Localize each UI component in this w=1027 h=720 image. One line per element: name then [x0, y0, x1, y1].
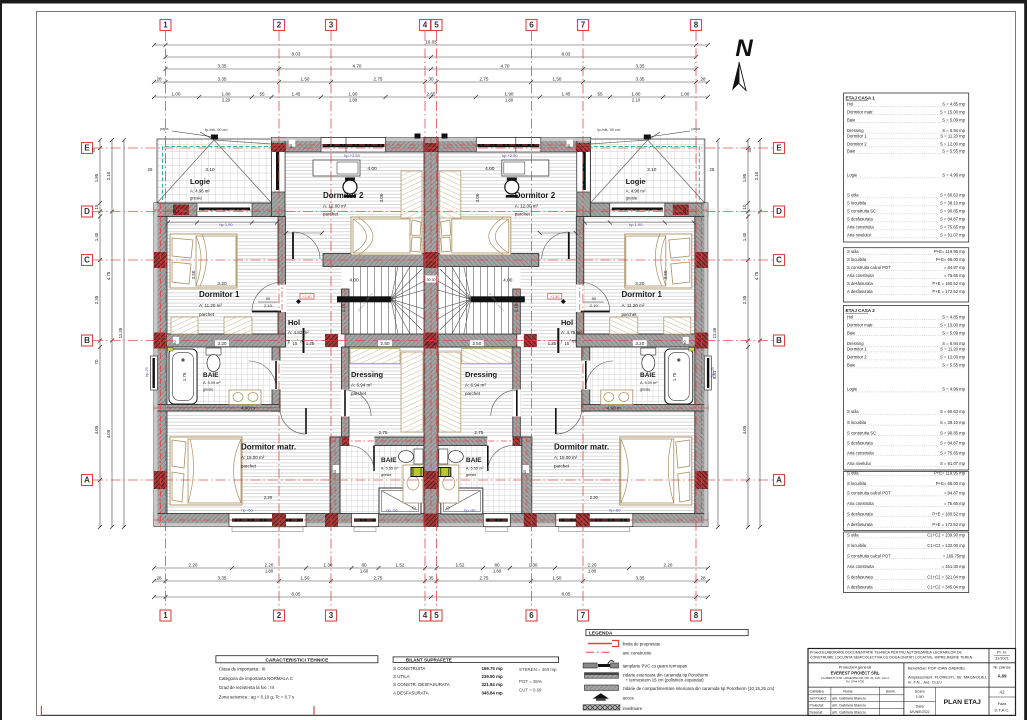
svg-text:8.05: 8.05 — [562, 592, 571, 597]
svg-text:B: B — [84, 336, 90, 345]
svg-text:S CONSTRUITA: S CONSTRUITA — [393, 666, 425, 671]
svg-text:parchet: parchet — [465, 391, 481, 396]
svg-text:S UTILA: S UTILA — [393, 674, 410, 679]
svg-text:PLAN ETAJ: PLAN ETAJ — [944, 699, 981, 706]
svg-text:CONSTRUIRE LOCUINTA SEMICOLECT: CONSTRUIRE LOCUINTA SEMICOLECTIVA CU DOU… — [810, 656, 973, 660]
svg-text:gresie: gresie — [640, 388, 650, 392]
svg-text:S = 11.20 mp: S = 11.20 mp — [940, 347, 965, 352]
svg-text:CARACTERISTICI TEHNICE: CARACTERISTICI TEHNICE — [265, 657, 329, 663]
svg-text:A desfasurata: A desfasurata — [847, 522, 873, 527]
svg-text:55: 55 — [597, 92, 603, 97]
svg-text:2.50: 2.50 — [381, 341, 390, 346]
svg-text:7: 7 — [581, 611, 586, 620]
svg-text:4.75: 4.75 — [106, 271, 111, 280]
svg-text:S = 6.94 mp: S = 6.94 mp — [942, 341, 965, 346]
svg-text:1.25: 1.25 — [306, 341, 315, 346]
svg-text:2.75: 2.75 — [374, 576, 383, 581]
svg-text:Pr. nr.: Pr. nr. — [997, 651, 1007, 655]
svg-text:1.00: 1.00 — [172, 92, 181, 97]
svg-text:gresie: gresie — [203, 388, 213, 392]
svg-text:1.50: 1.50 — [553, 576, 562, 581]
svg-text:S locuibila: S locuibila — [847, 420, 867, 425]
svg-text:3.20: 3.20 — [635, 341, 644, 346]
svg-text:2.20: 2.20 — [588, 563, 597, 568]
svg-text:8.03: 8.03 — [562, 52, 571, 57]
svg-text:C1+C2 = 345.04 mp: C1+C2 = 345.04 mp — [927, 585, 965, 590]
svg-text:BILANT SUPRAFETE: BILANT SUPRAFETE — [406, 658, 452, 663]
svg-text:239.90 mp: 239.90 mp — [481, 674, 503, 679]
svg-text:Scara: Scara — [915, 689, 926, 693]
svg-text:Baie: Baie — [847, 330, 856, 335]
svg-text:1.52: 1.52 — [396, 563, 405, 568]
svg-text:3.35: 3.35 — [218, 576, 227, 581]
svg-text:S locuibila: S locuibila — [847, 543, 867, 548]
svg-text:A: 6.94 m²: A: 6.94 m² — [465, 383, 486, 388]
svg-text:parchet: parchet — [622, 312, 638, 317]
svg-text:Beneficiar: POP IOAN GABRIEL: Beneficiar: POP IOAN GABRIEL — [908, 666, 967, 671]
svg-text:Aria nivelului: Aria nivelului — [847, 461, 871, 466]
svg-text:2.20: 2.20 — [264, 495, 273, 500]
svg-text:+ termositem 15 cm (polistiren: + termositem 15 cm (polistiren expandat) — [626, 677, 705, 682]
svg-text:Hol: Hol — [847, 101, 853, 106]
svg-text:gresie: gresie — [381, 473, 391, 477]
svg-text:4.05: 4.05 — [106, 429, 111, 438]
svg-text:hp -60: hp -60 — [241, 508, 253, 513]
svg-text:acces: acces — [623, 695, 634, 700]
svg-text:3: 3 — [329, 611, 334, 620]
svg-text:D: D — [776, 207, 782, 216]
svg-text:3.50: 3.50 — [191, 270, 196, 279]
svg-text:A.09: A.09 — [998, 674, 1008, 679]
svg-text:Aria construita: Aria construita — [847, 501, 874, 506]
svg-text:S utila: S utila — [847, 249, 859, 254]
svg-text:3.35: 3.35 — [218, 64, 227, 69]
svg-text:1.00: 1.00 — [681, 92, 690, 97]
svg-text:4.00: 4.00 — [367, 166, 377, 172]
svg-text:S = 4.96 mp: S = 4.96 mp — [942, 387, 965, 392]
svg-text:3.35: 3.35 — [218, 77, 227, 82]
svg-text:1.60: 1.60 — [360, 569, 369, 574]
svg-text:BAIE: BAIE — [640, 372, 656, 379]
svg-text:C: C — [776, 256, 782, 265]
svg-text:N: N — [735, 35, 753, 62]
svg-text:A: 12.00 m²: A: 12.00 m² — [515, 204, 539, 209]
svg-text:Zona seismica : ag = 0.10 g, T: Zona seismica : ag = 0.10 g, Tc = 0.7 s — [219, 695, 295, 700]
svg-text:A2: A2 — [999, 690, 1005, 695]
svg-text:= 75.65 mp: = 75.65 mp — [944, 273, 966, 278]
svg-text:2.75: 2.75 — [480, 77, 489, 82]
svg-text:Nr. plansa: Nr. plansa — [993, 666, 1011, 670]
svg-text:Dressing: Dressing — [847, 128, 864, 133]
svg-text:31/2021: 31/2021 — [995, 657, 1009, 661]
svg-text:3.00: 3.00 — [475, 193, 480, 202]
svg-text:papa: papa — [160, 127, 169, 131]
svg-text:= 151.30 mp: = 151.30 mp — [942, 564, 966, 569]
svg-text:S utila: S utila — [847, 409, 859, 414]
svg-text:hp -96: hp -96 — [464, 508, 476, 513]
svg-text:tp./nik. 90 cm: tp./nik. 90 cm — [205, 128, 228, 132]
svg-text:A: 4.96 m²: A: 4.96 m² — [190, 189, 210, 194]
svg-text:tp./nik. 90 cm: tp./nik. 90 cm — [597, 128, 620, 132]
svg-text:S = 15.00 mp: S = 15.00 mp — [940, 109, 966, 114]
svg-text:CUT = 0.69: CUT = 0.69 — [519, 687, 542, 692]
svg-text:D.T.A.C.: D.T.A.C. — [995, 708, 1010, 713]
svg-text:C: C — [84, 256, 90, 265]
svg-text:axe constructie: axe constructie — [623, 650, 653, 655]
svg-text:Dormitor 1: Dormitor 1 — [199, 290, 240, 299]
svg-text:A: 5.09 m²: A: 5.09 m² — [640, 381, 658, 385]
svg-text:S = 90.85 mp: S = 90.85 mp — [940, 209, 966, 214]
svg-text:1.25: 1.25 — [548, 341, 557, 346]
svg-text:2.10: 2.10 — [590, 303, 599, 308]
svg-text:parchet: parchet — [241, 464, 257, 469]
svg-text:S = 84.87 mp: S = 84.87 mp — [940, 441, 966, 446]
svg-text:A: A — [84, 476, 90, 485]
svg-text:S construita SC: S construita SC — [847, 430, 876, 435]
svg-text:16.05: 16.05 — [425, 40, 437, 45]
svg-text:S locuibila: S locuibila — [847, 481, 867, 486]
svg-text:P+E= 66.00 mp: P+E= 66.00 mp — [936, 481, 966, 486]
svg-text:1.50: 1.50 — [301, 77, 310, 82]
svg-text:+2.80: +2.80 — [302, 295, 311, 299]
svg-text:A: 6.94 m²: A: 6.94 m² — [351, 383, 372, 388]
svg-text:4.70: 4.70 — [501, 64, 510, 69]
svg-text:S = 12.00 mp: S = 12.00 mp — [940, 355, 966, 360]
svg-text:Logie: Logie — [847, 173, 858, 178]
svg-text:Dormitor 2: Dormitor 2 — [847, 355, 867, 360]
svg-text:6/IUNIE/2022: 6/IUNIE/2022 — [910, 710, 930, 714]
svg-text:S construita calcul POT: S construita calcul POT — [847, 265, 891, 270]
svg-text:ETAJ CASA 2: ETAJ CASA 2 — [846, 308, 876, 313]
svg-text:169.75 mp: 169.75 mp — [481, 666, 503, 671]
svg-text:Dressing: Dressing — [351, 370, 384, 379]
svg-text:parchet: parchet — [554, 464, 570, 469]
svg-text:Calitatea: Calitatea — [810, 690, 824, 694]
svg-text:P+E= 66.00 mp: P+E= 66.00 mp — [936, 257, 966, 262]
svg-text:3.35: 3.35 — [636, 77, 645, 82]
svg-text:= 84.87 mp: = 84.87 mp — [944, 491, 966, 496]
svg-text:1.40: 1.40 — [742, 232, 747, 241]
svg-text:40: 40 — [333, 470, 337, 474]
svg-text:2.10: 2.10 — [513, 303, 518, 312]
svg-text:1.80: 1.80 — [505, 98, 514, 103]
svg-text:A desfasurata: A desfasurata — [847, 585, 873, 590]
svg-text:3.20: 3.20 — [635, 281, 645, 287]
svg-text:C1+C2 = 321.04 mp: C1+C2 = 321.04 mp — [927, 574, 965, 579]
svg-text:11.35: 11.35 — [118, 327, 123, 338]
svg-text:gresie: gresie — [190, 196, 202, 201]
svg-text:S = 12.00 mp: S = 12.00 mp — [940, 142, 966, 147]
svg-text:4.05: 4.05 — [742, 425, 747, 434]
svg-text:1.75: 1.75 — [672, 372, 677, 381]
svg-text:arh. Gabriela Stanciu: arh. Gabriela Stanciu — [832, 697, 866, 701]
svg-text:S = 5.09 mp: S = 5.09 mp — [942, 117, 965, 122]
svg-text:Proiect:ELABORARE DOCUMENTATIE: Proiect:ELABORARE DOCUMENTATIE TEHNICA P… — [810, 651, 962, 655]
svg-text:4.05: 4.05 — [94, 425, 99, 434]
svg-text:1.45: 1.45 — [562, 92, 571, 97]
svg-text:25: 25 — [709, 167, 714, 172]
svg-text:1.45: 1.45 — [292, 92, 301, 97]
svg-text:2.10: 2.10 — [754, 171, 759, 180]
svg-text:1.90: 1.90 — [349, 92, 358, 97]
svg-text:P+E = 172.52 mp: P+E = 172.52 mp — [932, 522, 965, 527]
svg-text:11.36: 11.36 — [712, 327, 717, 338]
svg-text:35: 35 — [428, 576, 434, 581]
svg-text:2.75: 2.75 — [379, 430, 388, 435]
svg-text:70: 70 — [94, 359, 99, 364]
svg-text:1.80: 1.80 — [588, 569, 597, 574]
svg-text:Aria construita: Aria construita — [847, 564, 874, 569]
svg-text:parchet: parchet — [515, 212, 531, 217]
svg-text:= 84.87 mp: = 84.87 mp — [944, 265, 966, 270]
svg-text:2.20: 2.20 — [189, 563, 198, 568]
svg-text:Nume: Nume — [843, 690, 853, 694]
svg-text:15: 15 — [564, 341, 569, 346]
svg-text:Dressing: Dressing — [465, 370, 498, 379]
svg-text:1: 1 — [163, 611, 168, 620]
svg-text:S = 4.85 mp: S = 4.85 mp — [942, 101, 965, 106]
svg-text:Tel. 0744 9730: Tel. 0744 9730 — [846, 680, 865, 684]
svg-text:S = 75.65 mp: S = 75.65 mp — [940, 225, 966, 230]
svg-text:Clasa de importanta : III: Clasa de importanta : III — [219, 667, 266, 672]
svg-text:Sef Proiect:: Sef Proiect: — [810, 697, 828, 701]
svg-text:2.10: 2.10 — [264, 303, 273, 308]
svg-text:E: E — [84, 144, 90, 153]
svg-text:1.50: 1.50 — [301, 576, 310, 581]
svg-text:A: 12.00 m²: A: 12.00 m² — [323, 204, 347, 209]
svg-text:S = 5.55 mp: S = 5.55 mp — [942, 363, 965, 368]
svg-text:Dormitor matr.: Dormitor matr. — [847, 322, 874, 327]
svg-text:hp -96: hp -96 — [386, 508, 398, 513]
svg-text:S construita calcul POT: S construita calcul POT — [847, 554, 891, 559]
svg-text:345.84 mp: 345.84 mp — [481, 690, 503, 695]
svg-text:S = 60.63 mp: S = 60.63 mp — [940, 409, 966, 414]
svg-text:C1+C2 = 239.90 mp: C1+C2 = 239.90 mp — [927, 533, 965, 538]
svg-text:6: 6 — [529, 21, 534, 30]
svg-text:hp 25: hp 25 — [145, 367, 149, 377]
svg-text:gresie: gresie — [466, 473, 476, 477]
svg-text:S locuibila: S locuibila — [847, 257, 867, 262]
svg-text:hp +2.50: hp +2.50 — [502, 153, 518, 158]
svg-text:nr. F.N., Jud. CLUJ: nr. F.N., Jud. CLUJ — [908, 680, 942, 685]
svg-text:D: D — [84, 207, 90, 216]
svg-text:Dormitor matr.: Dormitor matr. — [554, 443, 609, 452]
svg-text:28: 28 — [700, 576, 706, 581]
svg-text:30: 30 — [428, 77, 434, 82]
svg-text:6: 6 — [529, 611, 534, 620]
svg-text:+2.80: +2.80 — [550, 295, 559, 299]
svg-text:Data: Data — [916, 704, 925, 708]
svg-text:1.52: 1.52 — [456, 563, 465, 568]
svg-text:S desfasurata: S desfasurata — [847, 281, 874, 286]
svg-text:A DESFASURATA: A DESFASURATA — [393, 690, 429, 695]
svg-text:A: 4.96 m²: A: 4.96 m² — [626, 189, 646, 194]
svg-text:Hol: Hol — [847, 314, 853, 319]
svg-text:BAIE: BAIE — [381, 457, 397, 464]
svg-text:3: 3 — [329, 21, 334, 30]
svg-text:Dormitor matr.: Dormitor matr. — [847, 109, 874, 114]
svg-text:55: 55 — [259, 92, 265, 97]
svg-text:hp 25: hp 25 — [711, 367, 715, 377]
svg-text:1.60: 1.60 — [493, 569, 502, 574]
svg-text:EVEREST PROIECT SRL: EVEREST PROIECT SRL — [831, 670, 880, 675]
svg-text:P+E= 119.95 mp: P+E= 119.95 mp — [934, 249, 966, 254]
svg-text:Categoria de importanta NORMAL: Categoria de importanta NORMALA C — [219, 676, 293, 681]
svg-text:limita de proprietate: limita de proprietate — [623, 641, 661, 646]
svg-text:1.80: 1.80 — [632, 92, 641, 97]
svg-text:2.75: 2.75 — [480, 576, 489, 581]
svg-text:Grad de rezistenta la foc : II: Grad de rezistenta la foc : III — [219, 685, 274, 690]
svg-text:S = 6.94 mp: S = 6.94 mp — [942, 128, 965, 133]
svg-text:tamplarie PVC cu geam termopan: tamplarie PVC cu geam termopan — [623, 663, 688, 668]
svg-text:1.50: 1.50 — [553, 77, 562, 82]
svg-text:E: E — [776, 144, 782, 153]
svg-text:1:50: 1:50 — [916, 694, 925, 699]
svg-text:Dressing: Dressing — [847, 341, 864, 346]
svg-text:Proiectat:: Proiectat: — [810, 704, 824, 708]
svg-text:Dormitor 2: Dormitor 2 — [323, 191, 364, 200]
svg-text:2.65: 2.65 — [427, 92, 436, 97]
svg-text:A: 15.00 m²: A: 15.00 m² — [554, 455, 578, 460]
svg-text:2.10: 2.10 — [632, 98, 641, 103]
svg-text:P+E = 160.52 mp: P+E = 160.52 mp — [932, 281, 965, 286]
svg-text:Dormitor 2: Dormitor 2 — [847, 142, 867, 147]
svg-text:5: 5 — [434, 21, 439, 30]
svg-text:A: 4.82 m²: A: 4.82 m² — [288, 330, 309, 335]
svg-text:30: 30 — [425, 341, 430, 346]
svg-text:Dormitor 2: Dormitor 2 — [515, 191, 556, 200]
svg-text:Baie: Baie — [847, 363, 856, 368]
svg-text:4.00: 4.00 — [485, 166, 495, 172]
svg-text:1.80: 1.80 — [349, 98, 358, 103]
svg-text:2: 2 — [277, 611, 282, 620]
svg-text:P+E= 119.95 mp: P+E= 119.95 mp — [934, 470, 966, 475]
svg-text:S desfasurata: S desfasurata — [847, 512, 874, 517]
svg-text:S = 91.07 mp: S = 91.07 mp — [940, 461, 966, 466]
svg-text:P+E = 172.52 mp: P+E = 172.52 mp — [932, 289, 965, 294]
svg-text:7: 7 — [581, 21, 586, 30]
svg-text:A: 11.20 m²: A: 11.20 m² — [622, 303, 645, 308]
svg-text:S = 11.20 mp: S = 11.20 mp — [940, 134, 965, 139]
svg-text:S = 4.96 mp: S = 4.96 mp — [942, 173, 965, 178]
svg-text:25: 25 — [148, 167, 153, 172]
svg-text:invelitoare: invelitoare — [623, 706, 643, 711]
svg-text:Hol: Hol — [288, 318, 300, 327]
svg-text:parchet: parchet — [199, 312, 215, 317]
svg-text:4: 4 — [423, 21, 428, 30]
svg-text:S = 90.85 mp: S = 90.85 mp — [940, 430, 966, 435]
svg-text:15: 15 — [94, 204, 99, 209]
svg-text:hp 1.90: hp 1.90 — [629, 222, 643, 227]
svg-text:Baie: Baie — [847, 117, 856, 122]
svg-text:S CONSTR. DESFASURATA: S CONSTR. DESFASURATA — [393, 682, 450, 687]
svg-text:S desfasurata: S desfasurata — [847, 574, 874, 579]
svg-text:80: 80 — [361, 563, 367, 568]
svg-text:S = 5.09 mp: S = 5.09 mp — [942, 330, 965, 335]
svg-text:hp -60: hp -60 — [609, 508, 621, 513]
svg-text:1.90: 1.90 — [505, 92, 514, 97]
svg-text:Logie: Logie — [847, 387, 858, 392]
svg-text:321.84 mp: 321.84 mp — [481, 682, 503, 687]
svg-text:40: 40 — [173, 340, 177, 344]
svg-text:Dormitor matr.: Dormitor matr. — [241, 443, 296, 452]
svg-text:1.30: 1.30 — [529, 563, 538, 568]
svg-text:A: 4.75 m²: A: 4.75 m² — [561, 330, 582, 335]
svg-text:30 30: 30 30 — [427, 278, 436, 282]
svg-text:40: 40 — [289, 144, 293, 148]
svg-text:Semn.: Semn. — [886, 690, 896, 694]
svg-text:2.20: 2.20 — [265, 563, 274, 568]
svg-text:3.35: 3.35 — [636, 576, 645, 581]
svg-text:4.00: 4.00 — [503, 278, 513, 284]
svg-text:= 169.75mp: = 169.75mp — [943, 554, 966, 559]
svg-text:Dormitor 1: Dormitor 1 — [847, 134, 867, 139]
svg-text:parchet: parchet — [351, 391, 367, 396]
svg-text:10: 10 — [742, 204, 747, 209]
svg-text:S construita SC: S construita SC — [847, 209, 876, 214]
svg-text:LEGENDA: LEGENDA — [589, 631, 613, 637]
svg-text:40: 40 — [523, 470, 527, 474]
svg-text:3.10: 3.10 — [205, 167, 215, 173]
svg-text:S construita calcul POT: S construita calcul POT — [847, 491, 891, 496]
svg-text:40: 40 — [172, 208, 177, 213]
svg-text:Logie: Logie — [190, 177, 210, 186]
svg-text:30: 30 — [433, 341, 438, 346]
svg-text:S = 75.65 mp: S = 75.65 mp — [940, 451, 966, 456]
svg-text:Baie: Baie — [847, 148, 856, 153]
svg-text:4.60 m: 4.60 m — [607, 406, 621, 411]
svg-text:Aria nivelului: Aria nivelului — [847, 233, 871, 238]
svg-text:80: 80 — [494, 563, 500, 568]
svg-text:1.85: 1.85 — [742, 173, 747, 182]
svg-text:1.30: 1.30 — [324, 563, 333, 568]
svg-text:S desfasurata: S desfasurata — [847, 441, 874, 446]
svg-text:1.80: 1.80 — [265, 569, 274, 574]
svg-text:8: 8 — [694, 21, 699, 30]
svg-text:2.20: 2.20 — [590, 495, 599, 500]
svg-text:A desfasurata: A desfasurata — [847, 289, 873, 294]
svg-text:S = 15.00 mp: S = 15.00 mp — [940, 322, 966, 327]
svg-text:Logie: Logie — [626, 177, 646, 186]
svg-text:40: 40 — [683, 340, 687, 344]
svg-text:arh. Gabriela Stanciu: arh. Gabriela Stanciu — [832, 710, 866, 714]
svg-text:S = 84.87 mp: S = 84.87 mp — [940, 217, 966, 222]
svg-text:1.80: 1.80 — [222, 92, 231, 97]
svg-text:3.20: 3.20 — [217, 281, 227, 287]
svg-text:4.60 m: 4.60 m — [241, 406, 255, 411]
svg-text:= 75.65 mp: = 75.65 mp — [944, 501, 966, 506]
svg-text:3.35: 3.35 — [636, 64, 645, 69]
svg-text:3.00: 3.00 — [379, 193, 384, 202]
svg-text:28: 28 — [156, 576, 162, 581]
svg-text:2.35: 2.35 — [742, 295, 747, 304]
svg-text:ETAJ CASA 1: ETAJ CASA 1 — [846, 96, 876, 101]
svg-text:S = 60.63 mp: S = 60.63 mp — [940, 193, 966, 198]
svg-text:BAIE: BAIE — [466, 457, 482, 464]
svg-text:A: A — [776, 476, 782, 485]
svg-text:gresie: gresie — [626, 196, 638, 201]
svg-text:2: 2 — [277, 21, 282, 30]
svg-text:3.50: 3.50 — [663, 270, 668, 279]
svg-text:4.75: 4.75 — [754, 271, 759, 280]
svg-text:1: 1 — [163, 21, 168, 30]
svg-text:5: 5 — [434, 611, 439, 620]
svg-text:90: 90 — [592, 296, 597, 301]
svg-text:S = 38.10 mp: S = 38.10 mp — [940, 201, 966, 206]
svg-text:2.10: 2.10 — [106, 171, 111, 180]
svg-text:A: 15.00 m²: A: 15.00 m² — [241, 455, 265, 460]
svg-text:28: 28 — [156, 77, 162, 82]
